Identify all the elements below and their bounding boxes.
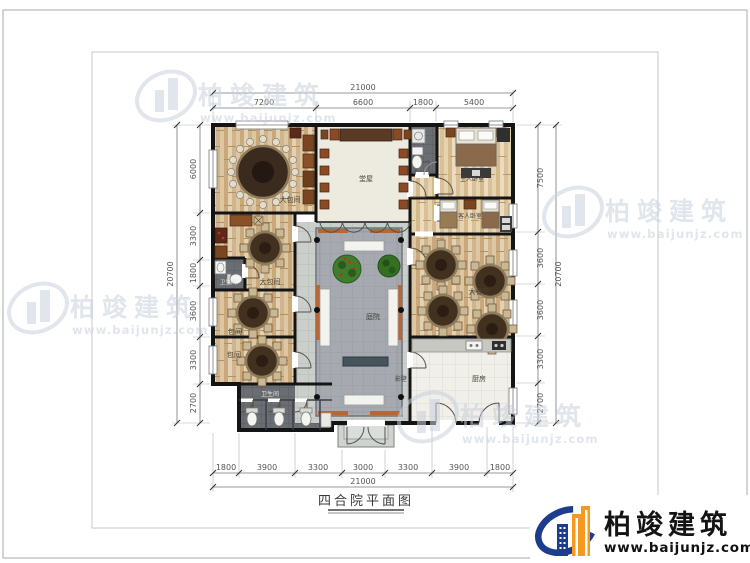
dim-right-0: 7500 bbox=[536, 168, 545, 188]
brand-logo: 柏竣建筑 www.baijunjz.com bbox=[530, 495, 750, 561]
watermark-url: www.baijunjz.com bbox=[607, 227, 744, 241]
dim-top-1: 6600 bbox=[353, 98, 373, 107]
tree-left bbox=[333, 255, 361, 283]
dim-bottom-6: 1800 bbox=[490, 463, 510, 472]
wc-cabinet bbox=[321, 413, 331, 427]
label-private-1: 包间 bbox=[228, 327, 242, 336]
dim-bottom-0: 1800 bbox=[216, 463, 236, 472]
watermark-url: www.baijunjz.com bbox=[200, 111, 337, 125]
watermark-name: 柏竣建筑 bbox=[70, 293, 198, 322]
dim-bottom-2: 3300 bbox=[308, 463, 328, 472]
label-private-2: 包间 bbox=[227, 350, 241, 359]
label-kitchen: 厨房 bbox=[472, 374, 486, 383]
label-wc-small: 卫生间 bbox=[220, 278, 237, 286]
window-west-private2 bbox=[209, 346, 217, 374]
label-dining-hall: 大餐厅 bbox=[469, 287, 490, 296]
plan-title-block: 四合院平面图 bbox=[318, 494, 414, 513]
dim-left-total: 20700 bbox=[166, 261, 175, 286]
label-screen-wall: 影壁 bbox=[395, 375, 407, 383]
dim-top-total: 21000 bbox=[350, 83, 375, 92]
watermark-name: 柏竣建筑 bbox=[198, 81, 326, 110]
plan-title: 四合院平面图 bbox=[318, 494, 414, 509]
dim-right-total: 20700 bbox=[554, 261, 563, 286]
dim-bottom-4: 3300 bbox=[398, 463, 418, 472]
toilet-stall-2 bbox=[273, 408, 285, 426]
kitchen-stove bbox=[492, 341, 506, 350]
label-hall: 堂屋 bbox=[359, 174, 373, 183]
label-guest-bedroom: 客人卧室 bbox=[458, 212, 482, 220]
dim-top-3: 5400 bbox=[464, 98, 484, 107]
watermark-3: 柏竣建筑 www.baijunjz.com bbox=[1, 274, 209, 341]
window-west-banquet bbox=[209, 150, 217, 188]
brand-url: www.baijunjz.com bbox=[604, 540, 750, 556]
watermark-url: www.baijunjz.com bbox=[72, 323, 209, 337]
screen-wall-slab bbox=[343, 357, 388, 366]
label-wc-public: 卫生间 bbox=[261, 390, 279, 398]
dim-left-1: 3300 bbox=[189, 226, 198, 246]
dim-right-3: 3300 bbox=[536, 349, 545, 369]
dim-left-4: 3300 bbox=[189, 350, 198, 370]
kitchen-furniture bbox=[412, 339, 511, 352]
watermark-url: www.baijunjz.com bbox=[462, 432, 599, 446]
dim-bottom-3: 3000 bbox=[353, 463, 373, 472]
dim-left-5: 2700 bbox=[189, 393, 198, 413]
dim-left-2: 1800 bbox=[189, 263, 198, 283]
floor-plan-canvas: 大包间 堂屋 主人卧室 客人卧室 大包间 卫生间 包间 包间 卫生间 大餐厅 厨… bbox=[0, 0, 750, 563]
entrance-porch bbox=[338, 425, 394, 447]
brand-name: 柏竣建筑 bbox=[604, 509, 732, 541]
kitchen-sink bbox=[466, 341, 482, 350]
dim-bottom-total: 21000 bbox=[350, 477, 375, 486]
toilet-stall-1 bbox=[246, 408, 258, 426]
watermark-2: 柏竣建筑 www.baijunjz.com bbox=[536, 178, 744, 245]
label-master-bedroom: 主人卧室 bbox=[460, 175, 484, 183]
floor-plan-page: 大包间 堂屋 主人卧室 客人卧室 大包间 卫生间 包间 包间 卫生间 大餐厅 厨… bbox=[0, 0, 750, 563]
tree-right bbox=[378, 255, 400, 277]
wardrobe-corner bbox=[497, 128, 510, 142]
label-private-large: 大包间 bbox=[260, 277, 281, 286]
dim-right-2: 3600 bbox=[536, 300, 545, 320]
altar-table bbox=[340, 129, 392, 141]
dim-left-0: 6000 bbox=[189, 159, 198, 179]
window-west-private1 bbox=[209, 298, 217, 326]
watermark-name: 柏竣建筑 bbox=[460, 402, 588, 431]
courtyard-platform bbox=[314, 228, 404, 416]
watermark-name: 柏竣建筑 bbox=[605, 197, 733, 226]
label-courtyard: 庭院 bbox=[366, 312, 380, 321]
dim-top-2: 1800 bbox=[413, 98, 433, 107]
window-east-dining-1 bbox=[509, 250, 517, 276]
toilet-stall-3 bbox=[300, 408, 312, 426]
dim-right-1: 3600 bbox=[536, 248, 545, 268]
dim-bottom-5: 3900 bbox=[449, 463, 469, 472]
watermark-1: 柏竣建筑 www.baijunjz.com bbox=[129, 62, 337, 129]
label-banquet: 大包间 bbox=[280, 195, 301, 204]
dim-bottom-1: 3900 bbox=[257, 463, 277, 472]
